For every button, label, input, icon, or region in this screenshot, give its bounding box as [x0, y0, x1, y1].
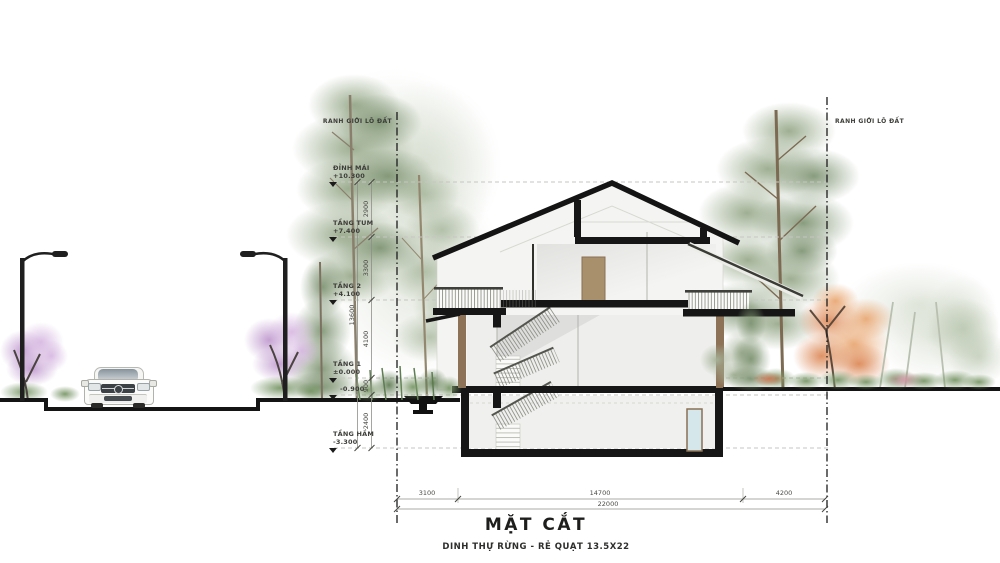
section-drawing: RANH GIỚI LÔ ĐẤT RANH GIỚI LÔ ĐẤT ĐỈNH M…	[0, 0, 1000, 563]
property-boundary-lines	[397, 97, 827, 523]
level-label-tum: TẦNG TUM +7.400	[333, 220, 373, 236]
dim-2400: 2400	[362, 413, 370, 430]
level-name: TẦNG TUM	[333, 219, 373, 227]
dim-900: 900	[362, 380, 370, 392]
level-name: TẦNG 1	[333, 360, 361, 368]
level-name: ĐỈNH MÁI	[333, 164, 370, 172]
boundary-label-left: RANH GIỚI LÔ ĐẤT	[300, 118, 392, 125]
level-elevation: -3.300	[333, 438, 357, 446]
level-label-ground: -0.900	[340, 386, 364, 394]
dim-4200: 4200	[776, 489, 793, 497]
boundary-label-right: RANH GIỚI LÔ ĐẤT	[835, 118, 904, 125]
dim-14700: 14700	[590, 489, 611, 497]
level-label-roof: ĐỈNH MÁI +10.300	[333, 165, 370, 181]
dim-2900: 2900	[362, 201, 370, 218]
level-elevation: +7.400	[333, 227, 360, 235]
dim-3300: 3300	[362, 260, 370, 277]
level-elevation: +10.300	[333, 172, 365, 180]
level-elevation: +4.100	[333, 290, 360, 298]
level-label-basement: TẦNG HẦM -3.300	[333, 431, 374, 447]
dim-13600: 13600	[348, 305, 356, 326]
dim-4100: 4100	[362, 331, 370, 348]
drawing-title: MẶT CẮT	[391, 515, 681, 535]
dim-22000: 22000	[598, 500, 619, 508]
level-name: TẦNG HẦM	[333, 430, 374, 438]
level-label-floor1: TẦNG 1 ±0.000	[333, 361, 361, 377]
annotation-linework	[0, 0, 1000, 563]
level-elevation: -0.900	[340, 385, 364, 393]
level-name: TẦNG 2	[333, 282, 361, 290]
level-label-floor2: TẦNG 2 +4.100	[333, 283, 361, 299]
drawing-subtitle: DINH THỰ RỪNG - RẺ QUẠT 13.5X22	[366, 542, 706, 552]
level-elevation: ±0.000	[333, 368, 360, 376]
dim-3100: 3100	[419, 489, 436, 497]
